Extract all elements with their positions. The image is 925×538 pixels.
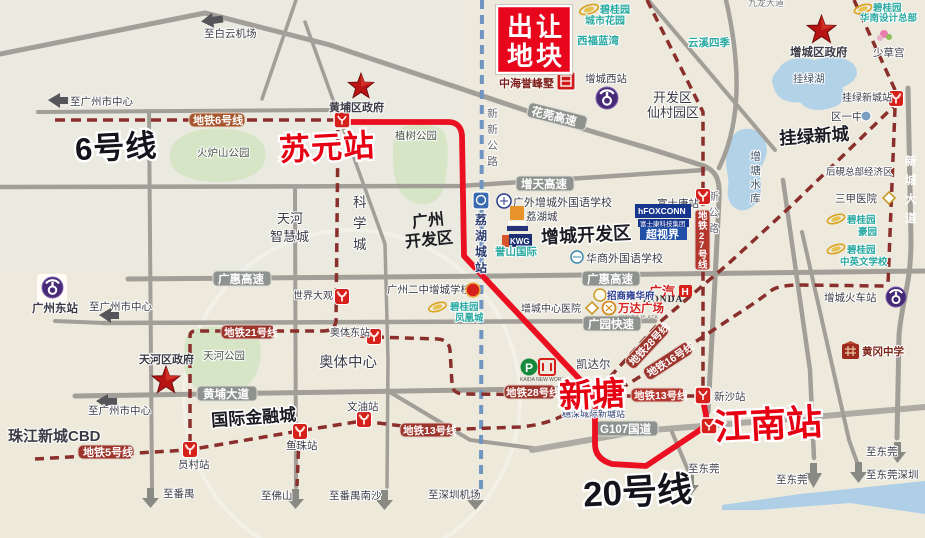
svg-text:智慧城: 智慧城 bbox=[270, 229, 309, 244]
svg-text:文油站: 文油站 bbox=[347, 400, 379, 413]
svg-text:万达广场: 万达广场 bbox=[617, 301, 664, 315]
svg-text:开发区: 开发区 bbox=[653, 90, 692, 105]
svg-text:黄埔大道: 黄埔大道 bbox=[203, 387, 249, 401]
svg-text:广惠高速: 广惠高速 bbox=[587, 272, 633, 286]
svg-text:江南站: 江南站 bbox=[713, 401, 823, 448]
svg-text:新: 新 bbox=[487, 122, 498, 136]
svg-text:城: 城 bbox=[905, 173, 917, 187]
svg-text:超视界: 超视界 bbox=[645, 227, 679, 241]
svg-text:华南设计总部: 华南设计总部 bbox=[860, 12, 918, 24]
svg-text:KWG: KWG bbox=[510, 237, 530, 246]
svg-text:至东莞: 至东莞 bbox=[688, 462, 720, 475]
svg-text:中海誉峰墅: 中海誉峰墅 bbox=[499, 76, 554, 90]
svg-text:三甲医院: 三甲医院 bbox=[835, 192, 877, 205]
svg-text:6号线: 6号线 bbox=[74, 128, 158, 167]
svg-text:九龙大道: 九龙大道 bbox=[748, 0, 784, 8]
svg-text:珠江新城CBD: 珠江新城CBD bbox=[8, 427, 101, 445]
svg-text:增: 增 bbox=[750, 149, 761, 163]
svg-text:科: 科 bbox=[353, 195, 367, 210]
svg-text:碧桂园: 碧桂园 bbox=[846, 214, 876, 226]
svg-text:至番禺: 至番禺 bbox=[163, 488, 195, 500]
svg-text:碧桂园: 碧桂园 bbox=[846, 244, 876, 256]
svg-text:城市花园: 城市花园 bbox=[585, 14, 625, 27]
svg-text:火炉山公园: 火炉山公园 bbox=[197, 147, 250, 159]
svg-text:至佛山: 至佛山 bbox=[261, 489, 293, 502]
svg-text:增城火车站: 增城火车站 bbox=[824, 291, 877, 304]
svg-text:鱼珠站: 鱼珠站 bbox=[286, 439, 318, 452]
svg-text:挂绿新城站: 挂绿新城站 bbox=[842, 91, 892, 104]
svg-text:员村站: 员村站 bbox=[178, 458, 210, 471]
svg-text:后硯总部经济区: 后硯总部经济区 bbox=[826, 166, 893, 178]
svg-text:广州二中增城学校: 广州二中增城学校 bbox=[387, 283, 471, 296]
svg-text:至广州市中心: 至广州市中心 bbox=[70, 95, 133, 108]
svg-text:植树公园: 植树公园 bbox=[395, 129, 437, 142]
svg-text:天河区政府: 天河区政府 bbox=[139, 352, 194, 366]
svg-text:至广州市中心: 至广州市中心 bbox=[88, 404, 151, 417]
svg-text:地铁13号线: 地铁13号线 bbox=[634, 389, 688, 402]
svg-text:新沙站: 新沙站 bbox=[714, 390, 746, 403]
svg-text:招商雍华府: 招商雍华府 bbox=[607, 290, 655, 302]
svg-text:碧桂园: 碧桂园 bbox=[599, 3, 630, 16]
svg-text:荔: 荔 bbox=[474, 212, 487, 227]
svg-text:道: 道 bbox=[905, 211, 917, 225]
svg-text:地块: 地块 bbox=[507, 41, 565, 71]
svg-text:华商外国语学校: 华商外国语学校 bbox=[586, 251, 663, 265]
svg-text:世界大观: 世界大观 bbox=[293, 289, 333, 302]
svg-text:奥体中心: 奥体中心 bbox=[319, 354, 377, 371]
svg-text:挂绿湖: 挂绿湖 bbox=[793, 72, 825, 85]
svg-text:广外增城外国语学校: 广外增城外国语学校 bbox=[513, 195, 612, 209]
svg-text:hFOXCONN: hFOXCONN bbox=[638, 206, 686, 216]
svg-text:仙村园区: 仙村园区 bbox=[647, 105, 699, 120]
svg-text:苏元站: 苏元站 bbox=[278, 128, 376, 168]
svg-text:地铁6号线: 地铁6号线 bbox=[193, 113, 243, 127]
svg-text:路: 路 bbox=[487, 155, 498, 168]
svg-text:誉山国际: 誉山国际 bbox=[494, 245, 537, 258]
svg-text:凤凰城: 凤凰城 bbox=[455, 312, 484, 324]
svg-text:至番禺南沙: 至番禺南沙 bbox=[329, 489, 382, 502]
svg-text:塘: 塘 bbox=[750, 163, 761, 177]
svg-text:广惠高速: 广惠高速 bbox=[218, 272, 264, 286]
svg-text:云溪四季: 云溪四季 bbox=[688, 36, 730, 49]
svg-text:增天高速: 增天高速 bbox=[521, 177, 567, 191]
svg-text:出让: 出让 bbox=[507, 12, 565, 42]
svg-text:天河公园: 天河公园 bbox=[203, 350, 245, 362]
svg-text:线: 线 bbox=[698, 259, 708, 271]
svg-text:增城中心医院: 增城中心医院 bbox=[521, 302, 581, 315]
svg-text:新: 新 bbox=[905, 154, 917, 168]
svg-text:站: 站 bbox=[475, 260, 487, 275]
svg-text:地铁13号线: 地铁13号线 bbox=[403, 424, 457, 437]
svg-text:20号线: 20号线 bbox=[582, 470, 693, 515]
svg-text:至东莞: 至东莞 bbox=[776, 473, 808, 486]
svg-text:西福蓝湾: 西福蓝湾 bbox=[577, 34, 619, 47]
svg-text:至白云机场: 至白云机场 bbox=[204, 27, 257, 40]
svg-text:富士康科技集团: 富士康科技集团 bbox=[640, 219, 686, 228]
svg-text:黄埔区政府: 黄埔区政府 bbox=[329, 100, 384, 114]
svg-text:碧桂园: 碧桂园 bbox=[449, 301, 479, 313]
svg-text:城: 城 bbox=[475, 244, 487, 259]
svg-text:中英文学校: 中英文学校 bbox=[840, 256, 888, 268]
svg-text:奥体东站: 奥体东站 bbox=[330, 326, 370, 339]
svg-text:荔湖城: 荔湖城 bbox=[526, 210, 558, 223]
svg-text:增城区政府: 增城区政府 bbox=[790, 45, 848, 59]
svg-text:城: 城 bbox=[353, 237, 367, 252]
svg-text:少草宫: 少草宫 bbox=[873, 46, 905, 59]
svg-text:黄冈中学: 黄冈中学 bbox=[862, 345, 904, 358]
svg-text:豪园: 豪园 bbox=[858, 226, 877, 238]
svg-text:大: 大 bbox=[905, 192, 917, 206]
svg-text:广州东站: 广州东站 bbox=[32, 301, 78, 315]
svg-text:凯达尔: 凯达尔 bbox=[576, 357, 611, 371]
svg-text:公: 公 bbox=[487, 140, 498, 152]
svg-text:水: 水 bbox=[750, 178, 761, 191]
svg-text:至东莞: 至东莞 bbox=[866, 445, 898, 458]
svg-text:G107国道: G107国道 bbox=[600, 422, 652, 436]
svg-text:至东莞深圳: 至东莞深圳 bbox=[866, 468, 919, 481]
svg-text:学: 学 bbox=[353, 216, 367, 231]
svg-text:至深圳机场: 至深圳机场 bbox=[428, 488, 481, 501]
svg-text:天河: 天河 bbox=[277, 211, 303, 226]
svg-text:地铁28号线: 地铁28号线 bbox=[506, 386, 560, 399]
svg-text:新: 新 bbox=[487, 106, 498, 120]
svg-text:区一中: 区一中 bbox=[831, 110, 863, 123]
svg-text:至广州市中心: 至广州市中心 bbox=[89, 300, 152, 313]
svg-text:库: 库 bbox=[750, 192, 761, 205]
svg-text:WANDA PLAZA: WANDA PLAZA bbox=[619, 315, 658, 321]
svg-text:地铁5号线: 地铁5号线 bbox=[83, 445, 133, 459]
svg-text:增城西站: 增城西站 bbox=[585, 72, 627, 85]
svg-text:地铁21号线: 地铁21号线 bbox=[224, 326, 278, 339]
svg-text:湖: 湖 bbox=[475, 228, 487, 243]
svg-text:新塘: 新塘 bbox=[558, 374, 626, 414]
svg-text:P: P bbox=[525, 361, 533, 375]
